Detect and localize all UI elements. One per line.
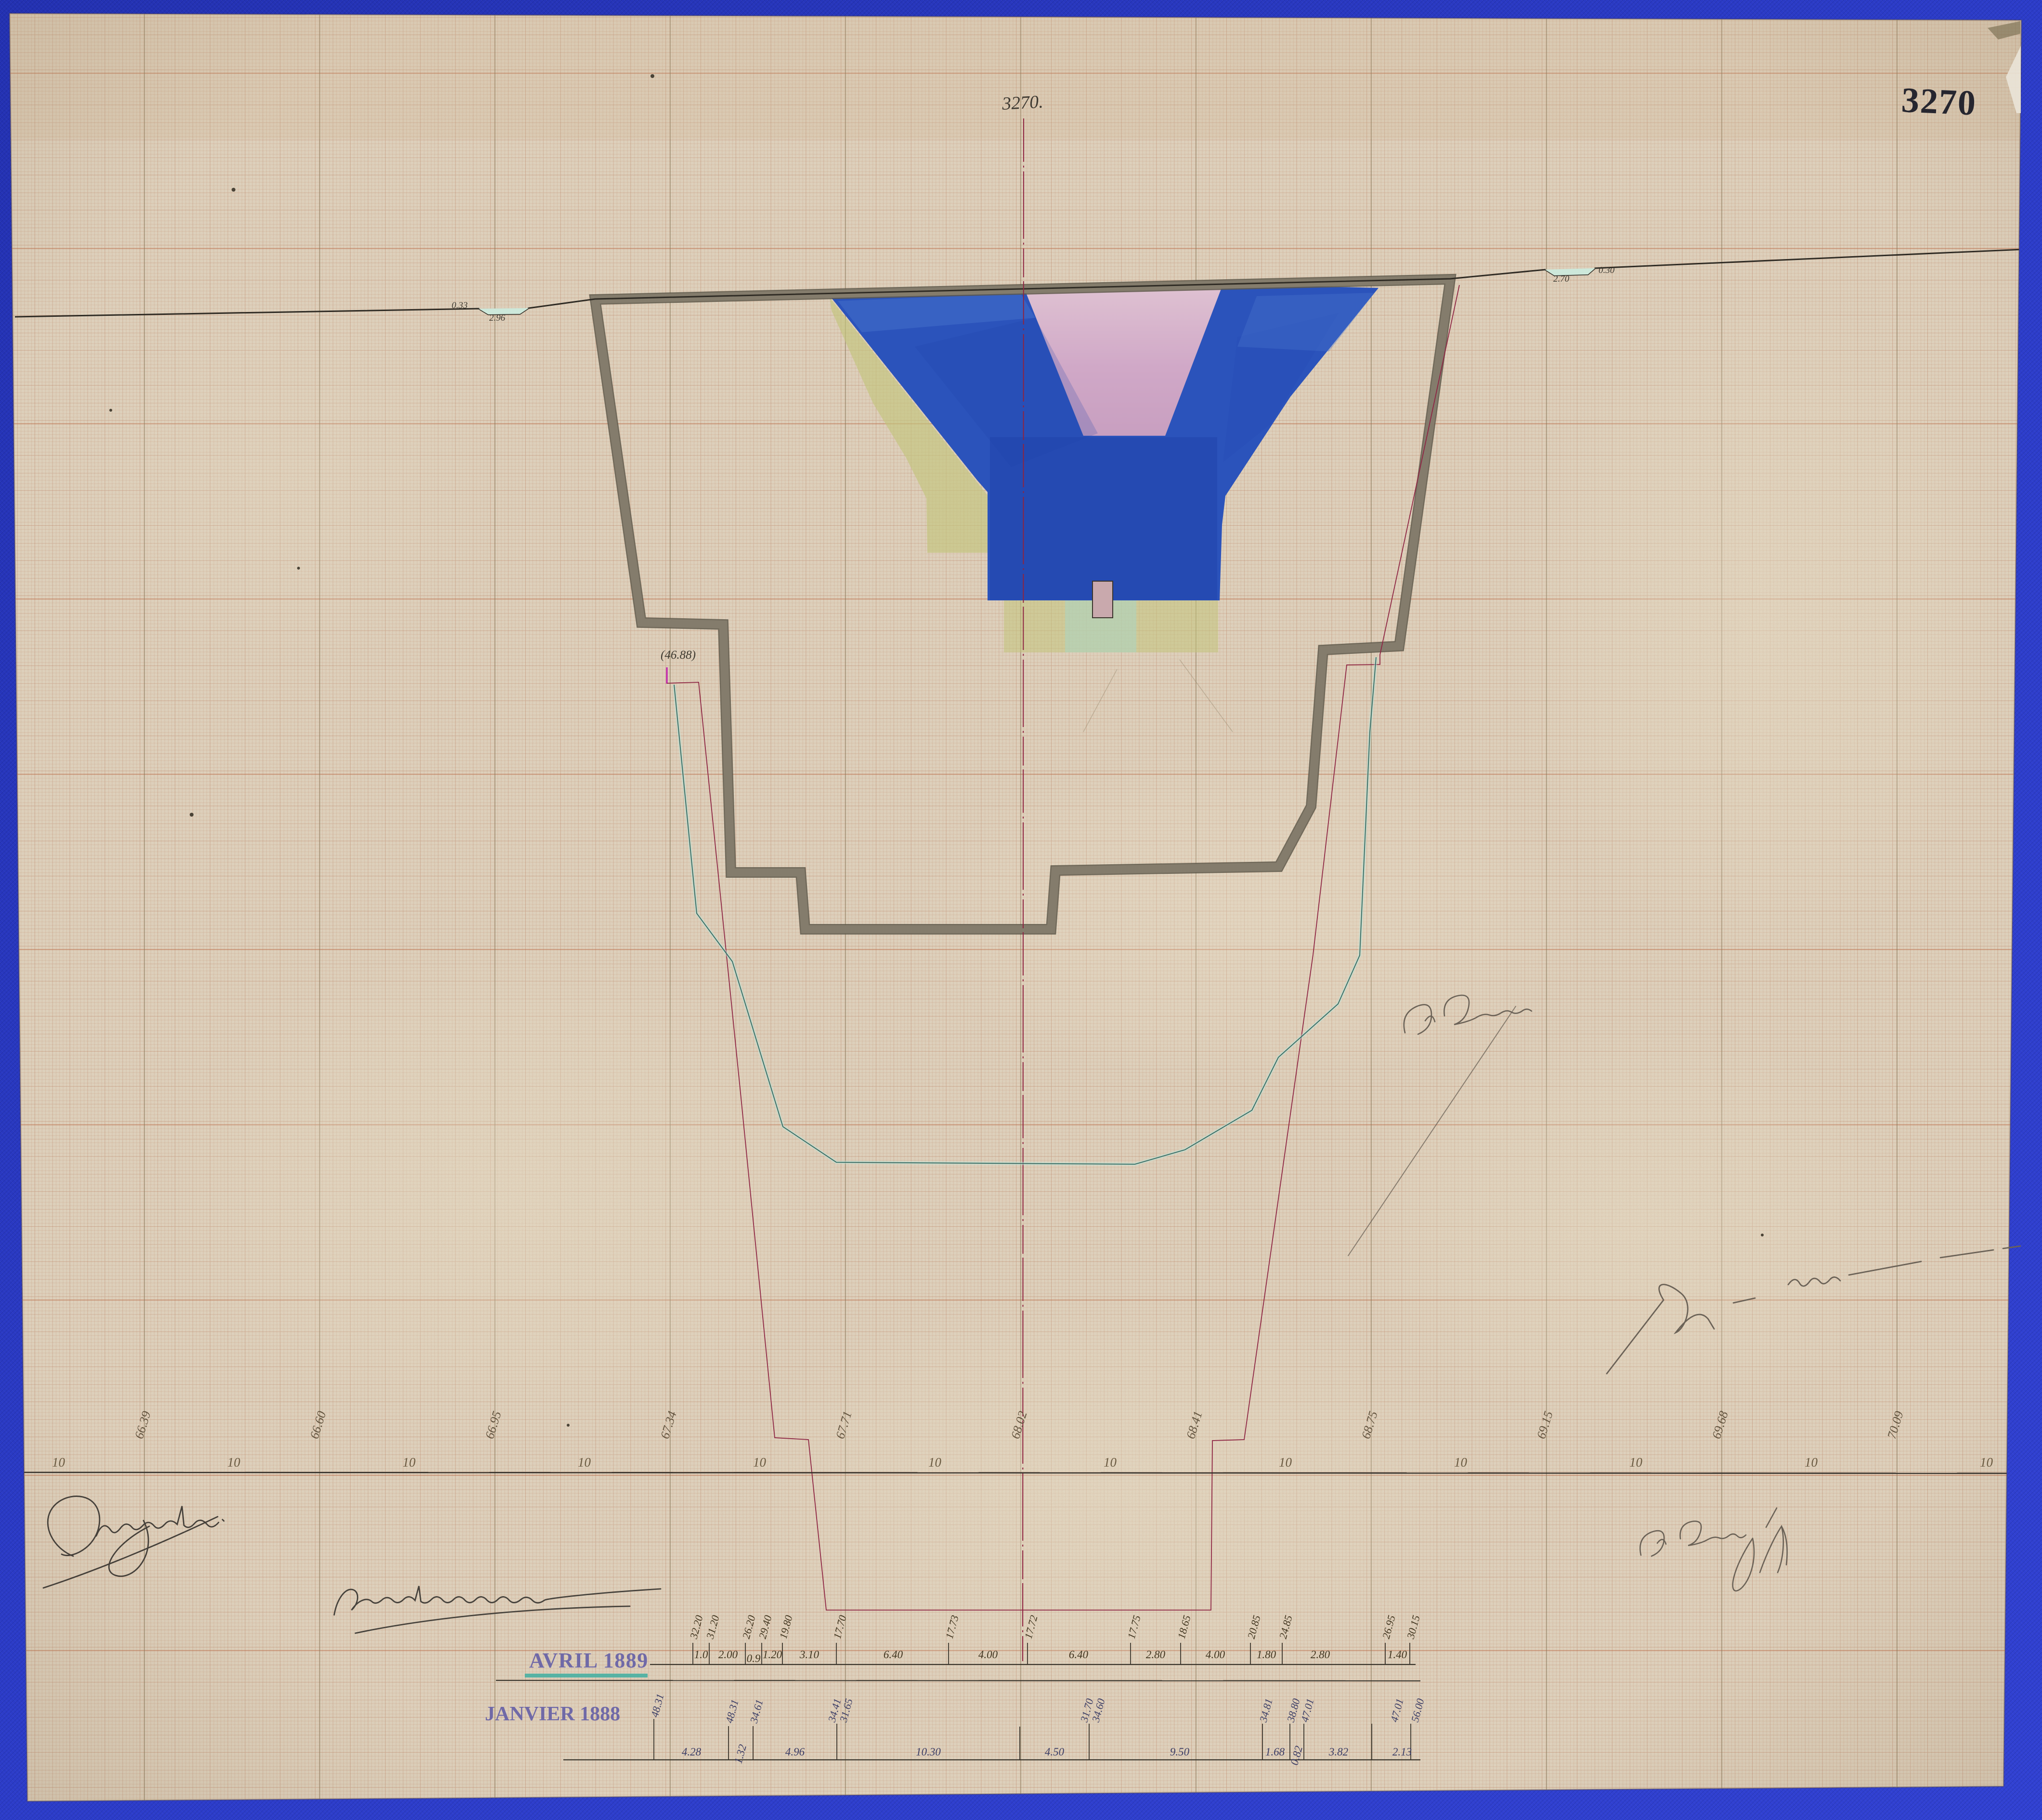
svg-text:9.50: 9.50 [1170, 1746, 1190, 1758]
svg-text:1.80: 1.80 [1257, 1649, 1276, 1661]
svg-text:10: 10 [1279, 1455, 1292, 1469]
svg-text:10: 10 [753, 1455, 767, 1469]
svg-text:0.33: 0.33 [452, 300, 468, 311]
svg-text:10: 10 [1454, 1455, 1468, 1469]
svg-text:10: 10 [1980, 1455, 1993, 1469]
svg-text:10: 10 [928, 1455, 942, 1469]
svg-text:3.82: 3.82 [1328, 1746, 1348, 1758]
svg-text:AVRIL 1889: AVRIL 1889 [529, 1649, 649, 1672]
svg-text:6.40: 6.40 [884, 1649, 903, 1661]
svg-text:2.13: 2.13 [1392, 1746, 1412, 1758]
svg-text:10: 10 [1629, 1455, 1643, 1469]
svg-text:2.70: 2.70 [1553, 274, 1570, 284]
svg-text:1.68: 1.68 [1265, 1746, 1285, 1758]
svg-text:2.80: 2.80 [1146, 1649, 1166, 1661]
svg-text:3270.: 3270. [1001, 91, 1044, 114]
svg-text:2.96: 2.96 [489, 313, 506, 323]
svg-text:6.40: 6.40 [1069, 1649, 1089, 1661]
svg-text:4.00: 4.00 [978, 1649, 998, 1661]
svg-text:10: 10 [52, 1455, 65, 1469]
svg-text:10: 10 [227, 1455, 241, 1469]
svg-text:0.9: 0.9 [747, 1652, 761, 1664]
svg-text:2.80: 2.80 [1311, 1649, 1330, 1661]
svg-text:(46.88): (46.88) [661, 649, 696, 662]
svg-text:1.0: 1.0 [694, 1649, 708, 1661]
svg-text:10: 10 [1805, 1455, 1818, 1469]
svg-text:4.96: 4.96 [785, 1746, 805, 1758]
svg-text:4.00: 4.00 [1206, 1649, 1225, 1661]
svg-text:3270: 3270 [1900, 80, 1977, 123]
svg-text:0.30: 0.30 [1599, 265, 1615, 275]
svg-text:10: 10 [403, 1455, 416, 1469]
svg-text:10.30: 10.30 [916, 1746, 941, 1758]
svg-text:4.28: 4.28 [682, 1746, 702, 1758]
svg-text:2.00: 2.00 [718, 1649, 738, 1661]
svg-text:10: 10 [578, 1455, 591, 1469]
svg-text:1.20: 1.20 [763, 1649, 782, 1661]
svg-text:4.50: 4.50 [1045, 1746, 1065, 1758]
svg-text:3.10: 3.10 [799, 1649, 819, 1661]
svg-text:10: 10 [1104, 1455, 1117, 1469]
svg-text:1.40: 1.40 [1388, 1649, 1407, 1661]
svg-text:JANVIER 1888: JANVIER 1888 [485, 1703, 620, 1725]
